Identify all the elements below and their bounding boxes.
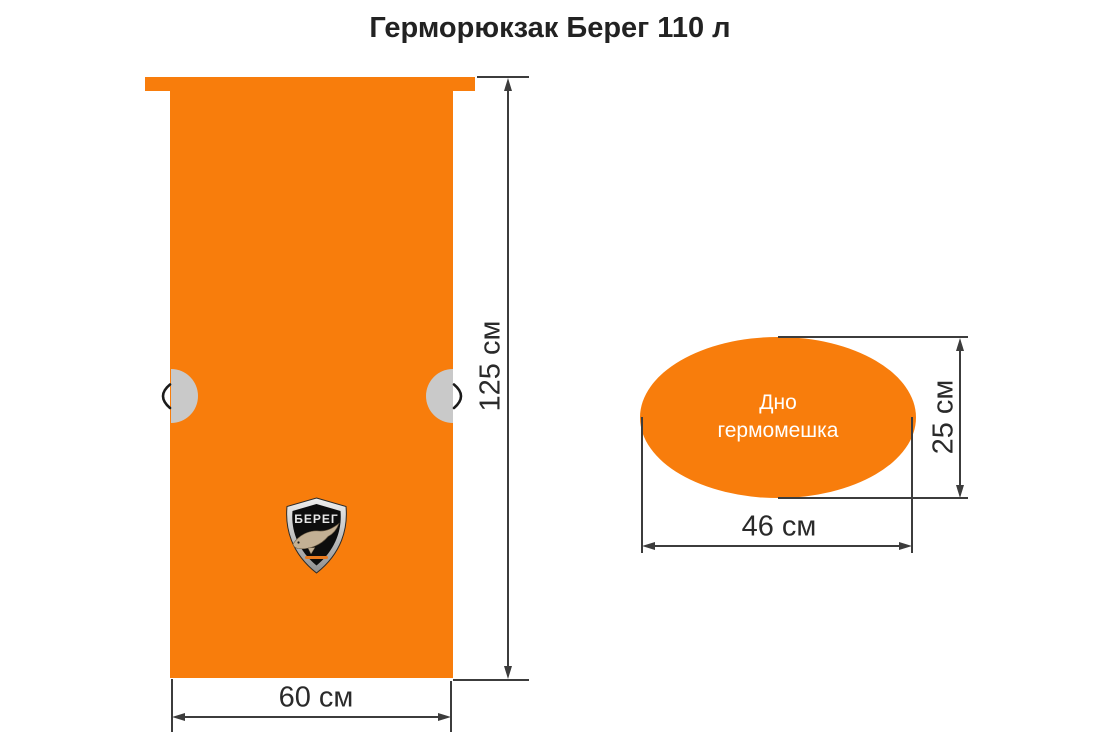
page-title: Герморюкзак Берег 110 л <box>0 12 1100 45</box>
bottom-view-label-line2: гермомешка <box>718 417 839 445</box>
side-loop-right-path <box>454 385 461 409</box>
brand-logo: БЕРЕГ <box>283 497 350 575</box>
dimension-lines <box>0 0 1100 733</box>
arrowhead-up <box>956 338 964 351</box>
logo-fineprint <box>305 556 328 559</box>
label-width-60: 60 см <box>279 682 354 715</box>
side-loop-left-path <box>163 385 170 409</box>
side-loop-right-icon <box>452 383 468 410</box>
arrowhead-right <box>438 713 451 721</box>
arrowhead-left <box>642 542 655 550</box>
label-width-46: 46 см <box>742 511 817 544</box>
diagram-canvas: Герморюкзак Берег 110 л БЕРЕГ <box>0 0 1100 733</box>
arrowhead-right <box>899 542 912 550</box>
bottom-view-label: Дно гермомешка <box>718 389 839 445</box>
arrowhead-down <box>956 485 964 498</box>
side-loop-left-icon <box>156 383 172 410</box>
arrowhead-up <box>504 78 512 91</box>
arrowhead-down <box>504 666 512 679</box>
label-height-125: 125 см <box>475 321 508 412</box>
logo-text: БЕРЕГ <box>294 512 338 526</box>
arrowhead-left <box>172 713 185 721</box>
label-height-25: 25 см <box>928 380 961 455</box>
bag-body <box>170 77 453 678</box>
bottom-view-label-line1: Дно <box>718 389 839 417</box>
